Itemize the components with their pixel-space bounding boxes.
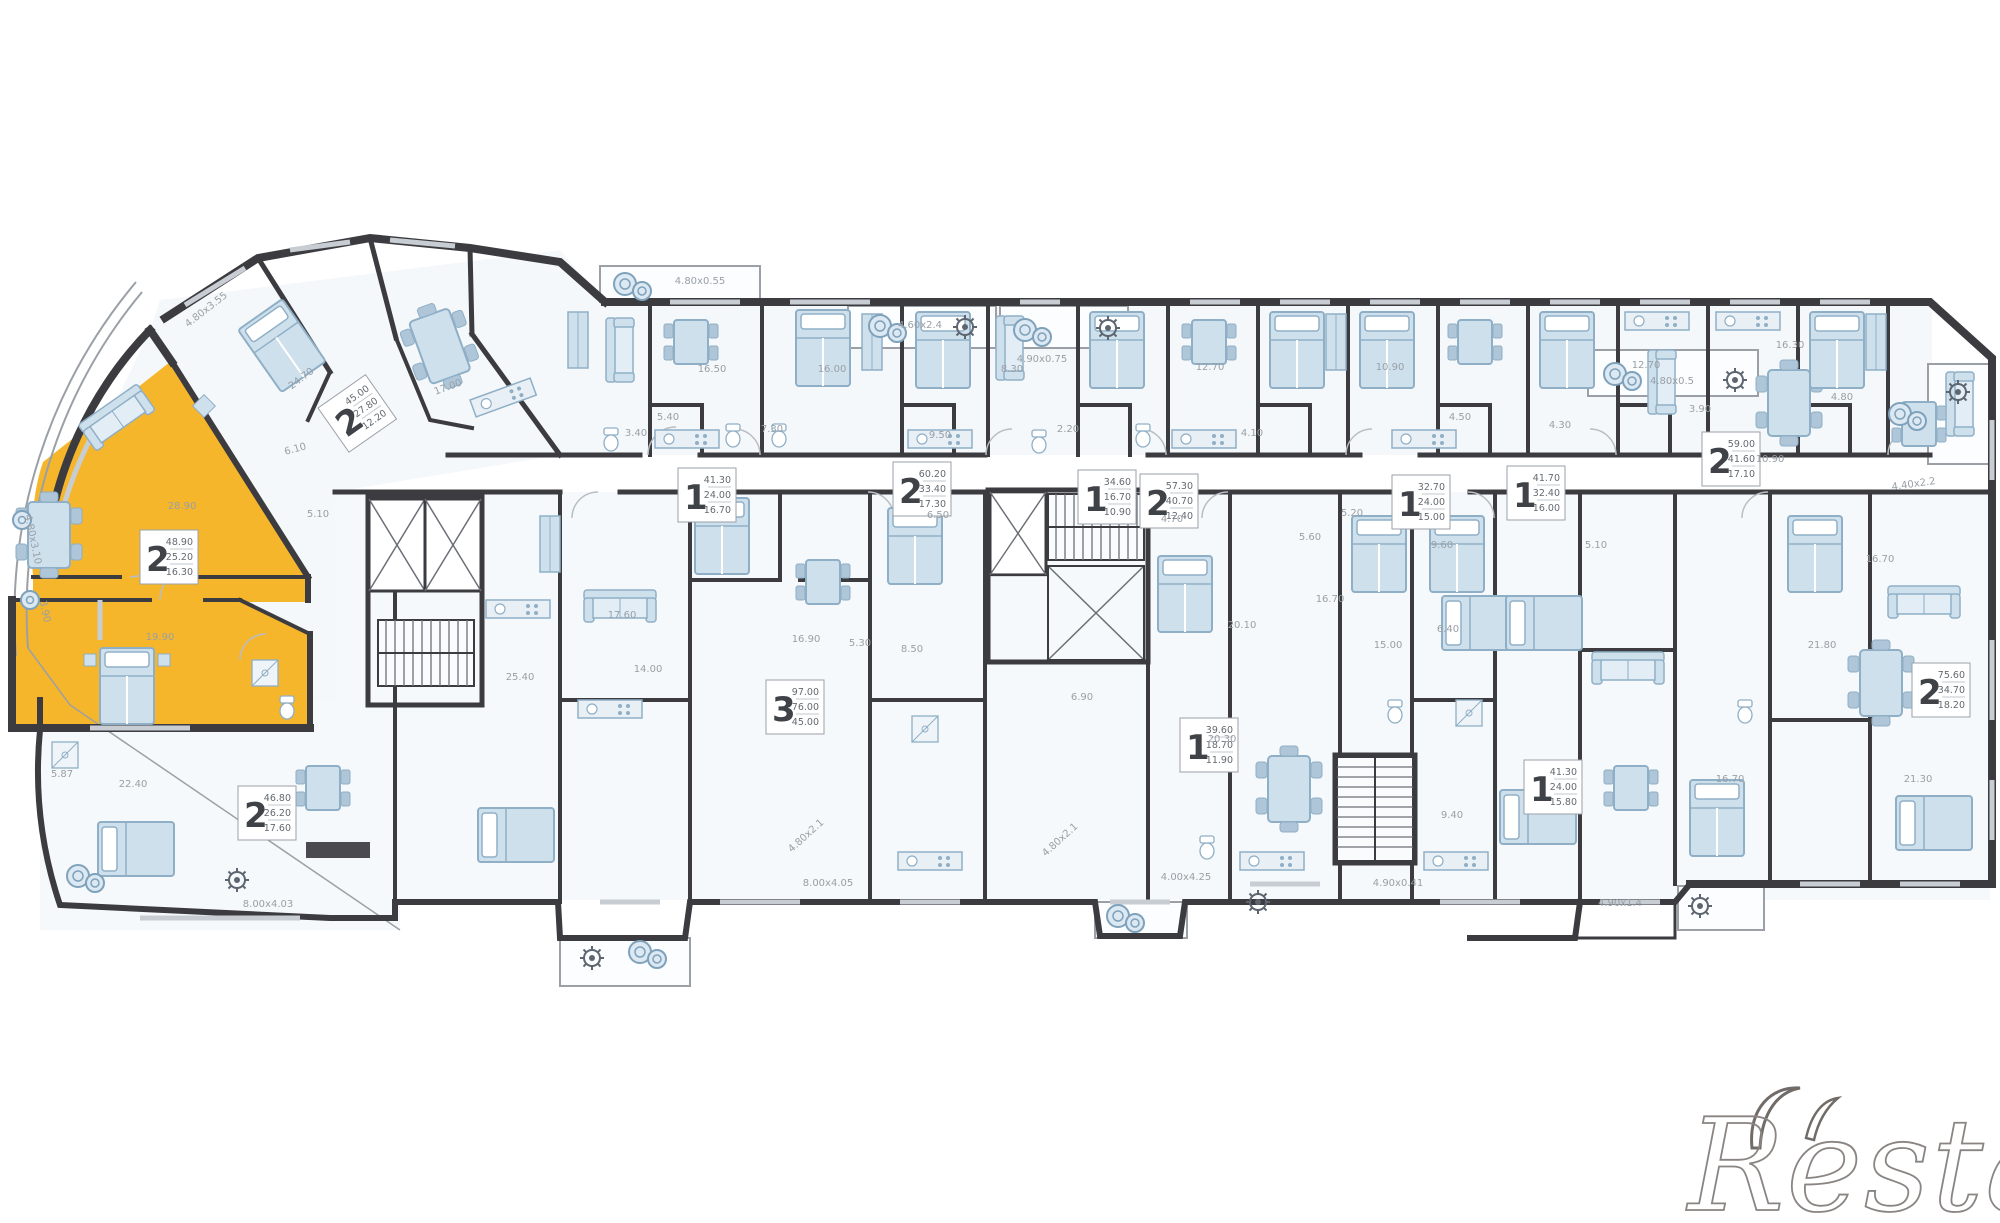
- kitchen-counter: [1392, 430, 1456, 448]
- dimension-label: 5.20: [1341, 508, 1363, 519]
- toilet: [604, 428, 618, 451]
- unit-label[interactable]: 248.9025.2016.30: [140, 530, 198, 584]
- toilet: [1136, 424, 1150, 447]
- wardrobe: [540, 516, 560, 572]
- unit-area-value: 34.70: [1938, 685, 1965, 696]
- dimension-label: 10.90: [1756, 454, 1785, 465]
- unit-area-value: 32.40: [1533, 488, 1560, 499]
- unit-area-value: 97.00: [792, 687, 819, 698]
- unit-area-value: 18.20: [1938, 700, 1965, 711]
- unit-label[interactable]: 132.7024.0015.00: [1392, 475, 1450, 529]
- unit-area-value: 17.30: [919, 499, 946, 510]
- unit-area-value: 15.00: [1418, 512, 1445, 523]
- dimension-label: 4.80x0.55: [675, 276, 725, 287]
- gear-icon: [1946, 380, 1970, 404]
- dimension-label: 16.70: [1716, 774, 1745, 785]
- dimension-label: 12.70: [1196, 362, 1225, 373]
- dimension-label: 20.10: [1228, 620, 1257, 631]
- unit-area-value: 41.30: [1550, 767, 1577, 778]
- toilet: [1032, 430, 1046, 453]
- unit-area-value: 32.70: [1418, 482, 1445, 493]
- wardrobe: [1326, 314, 1346, 370]
- unit-area-value: 10.90: [1104, 507, 1131, 518]
- dimension-label: 4.80x0.5: [1650, 376, 1694, 387]
- unit-label[interactable]: 141.7032.4016.00: [1507, 466, 1565, 520]
- kitchen-counter: [486, 600, 550, 618]
- dimension-label: 5.40: [657, 412, 679, 423]
- kitchen-counter: [1240, 852, 1304, 870]
- unit-label[interactable]: 141.3024.0016.70: [678, 468, 736, 522]
- round-vent-icon: [21, 591, 39, 609]
- toilet: [1738, 700, 1752, 723]
- unit-area-value: 33.40: [919, 484, 946, 495]
- bed: [1270, 312, 1324, 388]
- unit-area-value: 59.00: [1728, 439, 1755, 450]
- unit-area-value: 45.00: [792, 717, 819, 728]
- dimension-label: 4.80: [1831, 392, 1853, 403]
- dimension-label: 5.87: [51, 769, 73, 780]
- kitchen-counter: [578, 700, 642, 718]
- unit-area-value: 17.60: [264, 823, 291, 834]
- dimension-label: 21.30: [1904, 774, 1933, 785]
- unit-area-value: 24.00: [1418, 497, 1445, 508]
- dimension-label: 19.90: [146, 632, 175, 643]
- bed: [100, 648, 154, 724]
- kitchen-counter: [1424, 852, 1488, 870]
- gear-icon: [1688, 894, 1712, 918]
- wardrobe: [1866, 314, 1886, 370]
- unit-area-value: 48.90: [166, 537, 193, 548]
- dimension-label: 9.60: [1431, 540, 1453, 551]
- toilet: [280, 696, 294, 719]
- sofa: [606, 318, 634, 382]
- dimension-label: 12.70: [1632, 360, 1661, 371]
- unit-area-value: 76.00: [792, 702, 819, 713]
- unit-area-value: 41.60: [1728, 454, 1755, 465]
- unit-area-value: 24.00: [704, 490, 731, 501]
- dimension-label: 10.90: [1376, 362, 1405, 373]
- unit-label[interactable]: 275.6034.7018.20: [1912, 663, 1970, 717]
- dimension-label: 4.10: [1241, 428, 1263, 439]
- sofa: [1592, 652, 1664, 684]
- unit-area-value: 11.90: [1206, 755, 1233, 766]
- gear-icon: [580, 946, 604, 970]
- dimension-label: 16.30: [1776, 340, 1805, 351]
- dimension-label: 4.30: [1549, 420, 1571, 431]
- bed: [1788, 516, 1842, 592]
- stair-core-right: [1337, 757, 1413, 861]
- unit-label[interactable]: 141.3024.0015.80: [1524, 760, 1582, 814]
- unit-area-value: 15.80: [1550, 797, 1577, 808]
- toilet: [1200, 836, 1214, 859]
- dimension-label: 8.00x4.05: [803, 878, 853, 889]
- dimension-label: 6.50: [927, 510, 949, 521]
- unit-area-value: 26.20: [264, 808, 291, 819]
- bed: [1506, 596, 1582, 650]
- dimension-label: 16.50: [698, 364, 727, 375]
- floor-plan-svg: 248.9025.2016.30245.0027.8012.20246.8026…: [0, 0, 2000, 1223]
- kitchen-dark: [306, 842, 370, 858]
- unit-area-value: 60.20: [919, 469, 946, 480]
- kitchen-counter: [1172, 430, 1236, 448]
- unit-area-value: 25.20: [166, 552, 193, 563]
- dimension-label: 17.60: [608, 610, 637, 621]
- bed: [1810, 312, 1864, 388]
- shower: [252, 660, 278, 686]
- toilet: [1388, 700, 1402, 723]
- unit-area-value: 57.30: [1166, 481, 1193, 492]
- gear-icon: [1246, 890, 1270, 914]
- dimension-label: 4.70: [1161, 514, 1183, 525]
- dimension-label: 28.90: [168, 501, 197, 512]
- gear-icon: [225, 868, 249, 892]
- stair-core-left: [369, 499, 481, 686]
- unit-label[interactable]: 246.8026.2017.60: [238, 786, 296, 840]
- dimension-label: 3.40: [625, 428, 647, 439]
- dimension-label: 16.90: [792, 634, 821, 645]
- dimension-label: 8.00x4.03: [243, 899, 293, 910]
- dimension-label: 6.40: [1437, 624, 1459, 635]
- watermark-text: Restate: [1686, 1092, 2000, 1223]
- dimension-label: 6.90: [1071, 692, 1093, 703]
- dimension-label: 8.30: [1001, 364, 1023, 375]
- dimension-label: 8.50: [901, 644, 923, 655]
- floor-plan-page: 248.9025.2016.30245.0027.8012.20246.8026…: [0, 0, 2000, 1223]
- bed: [478, 808, 554, 862]
- bed: [1360, 312, 1414, 388]
- unit-area-value: 75.60: [1938, 670, 1965, 681]
- nightstand: [84, 654, 96, 666]
- dimension-label: 3.90: [1689, 404, 1711, 415]
- unit-label[interactable]: 139.6018.7011.90: [1180, 718, 1238, 772]
- shower: [912, 716, 938, 742]
- sofa: [1888, 586, 1960, 618]
- kitchen-counter: [655, 430, 719, 448]
- unit-area-value: 46.80: [264, 793, 291, 804]
- unit-area-value: 40.70: [1166, 496, 1193, 507]
- dimension-label: 15.00: [1374, 640, 1403, 651]
- dimension-label: 25.40: [506, 672, 535, 683]
- dimension-label: 16.70: [1866, 554, 1895, 565]
- unit-label[interactable]: 260.2033.4017.30: [893, 462, 951, 516]
- dimension-label: 14.00: [634, 664, 663, 675]
- unit-label[interactable]: 134.6016.7010.90: [1078, 470, 1136, 524]
- unit-area-value: 34.60: [1104, 477, 1131, 488]
- bed: [1690, 780, 1744, 856]
- dimension-label: 5.10: [1585, 540, 1607, 551]
- unit-area-value: 16.70: [704, 505, 731, 516]
- kitchen-counter: [1716, 312, 1780, 330]
- nightstand: [158, 654, 170, 666]
- unit-area-value: 16.70: [1104, 492, 1131, 503]
- dimension-label: 4.90x0.75: [1017, 354, 1067, 365]
- unit-label[interactable]: 259.0041.6017.10: [1702, 432, 1760, 486]
- dimension-label: 16.70: [1316, 594, 1345, 605]
- unit-label[interactable]: 397.0076.0045.00: [766, 680, 824, 734]
- dimension-label: 2.20: [1057, 424, 1079, 435]
- unit-area-value: 41.70: [1533, 473, 1560, 484]
- gear-icon: [953, 315, 977, 339]
- dimension-label: 4.90x0.41: [1373, 878, 1423, 889]
- shower: [52, 742, 78, 768]
- dimension-label: 20.30: [1208, 734, 1237, 745]
- dimension-label: 5.60: [1299, 532, 1321, 543]
- toilet: [726, 424, 740, 447]
- dimension-label: 22.40: [119, 779, 148, 790]
- dimension-label: 5.10: [307, 509, 329, 520]
- unit-area-value: 41.30: [704, 475, 731, 486]
- dimension-label: 9.50: [929, 430, 951, 441]
- bed: [98, 822, 174, 876]
- sofa: [1946, 372, 1974, 436]
- unit-area-value: 16.30: [166, 567, 193, 578]
- shower: [1456, 700, 1482, 726]
- dimension-label: 9.40: [1441, 810, 1463, 821]
- kitchen-counter: [1625, 312, 1689, 330]
- unit-area-value: 17.10: [1728, 469, 1755, 480]
- bed: [1540, 312, 1594, 388]
- gear-icon: [1096, 316, 1120, 340]
- dimension-label: 4.60x2.4: [898, 320, 942, 331]
- dimension-label: 21.80: [1808, 640, 1837, 651]
- dimension-label: 4.50: [1449, 412, 1471, 423]
- dimension-label: 16.00: [818, 364, 847, 375]
- dimension-label: 4.00x4.25: [1161, 872, 1211, 883]
- bed: [1090, 312, 1144, 388]
- bed: [1158, 556, 1212, 632]
- wardrobe: [568, 312, 588, 368]
- unit-area-value: 16.00: [1533, 503, 1560, 514]
- dimension-label: 7.30: [761, 424, 783, 435]
- dimension-label: 5.30: [849, 638, 871, 649]
- watermark: Restate: [1686, 1088, 2000, 1223]
- kitchen-counter: [898, 852, 962, 870]
- unit-area-value: 24.00: [1550, 782, 1577, 793]
- gear-icon: [1723, 368, 1747, 392]
- dimension-label: 4.90x1.4: [1598, 898, 1642, 909]
- bed: [1896, 796, 1972, 850]
